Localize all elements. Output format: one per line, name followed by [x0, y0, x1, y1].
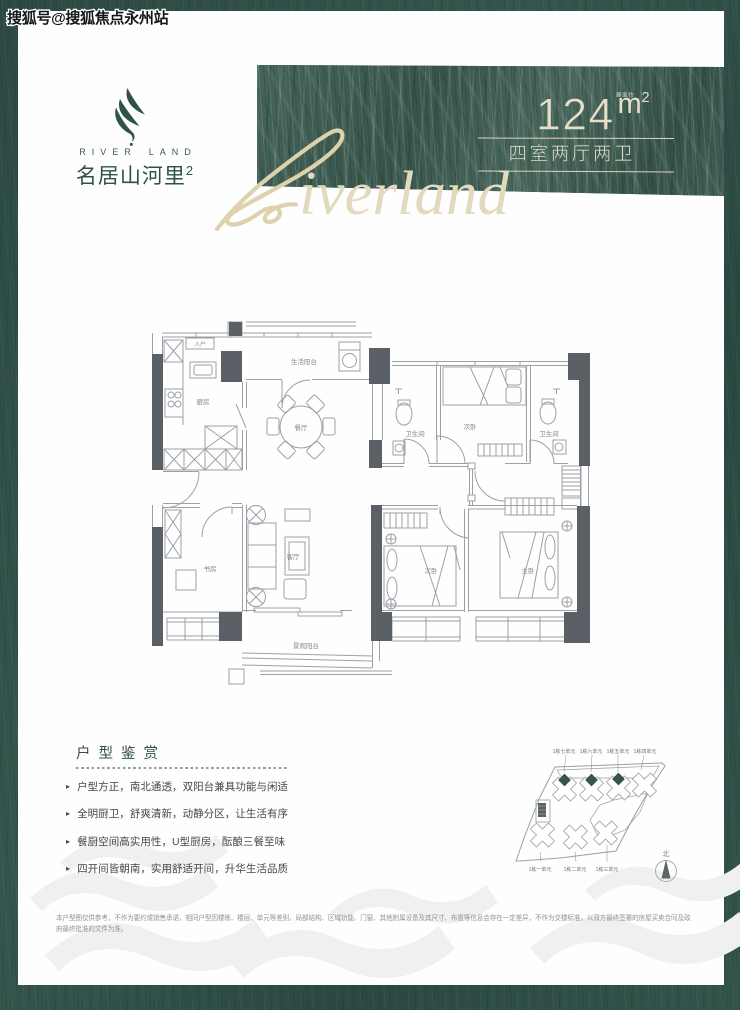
svg-text:124: 124 — [536, 91, 615, 140]
svg-text:餐厅: 餐厅 — [295, 423, 309, 432]
svg-text:次卧: 次卧 — [464, 422, 478, 431]
svg-text:书房: 书房 — [204, 564, 217, 573]
svg-text:主卧: 主卧 — [522, 566, 536, 575]
svg-text:客厅: 客厅 — [287, 552, 301, 561]
svg-text:入户: 入户 — [194, 340, 205, 348]
svg-text:景观阳台: 景观阳台 — [293, 641, 319, 650]
svg-text:厨房: 厨房 — [197, 397, 210, 406]
svg-text:生活阳台: 生活阳台 — [291, 357, 317, 366]
svg-text:建面约: 建面约 — [616, 91, 635, 99]
svg-text:2: 2 — [642, 90, 650, 106]
svg-text:卫生间: 卫生间 — [405, 429, 425, 438]
svg-text:次卧: 次卧 — [425, 566, 439, 575]
svg-text:卫生间: 卫生间 — [539, 429, 559, 438]
svg-text:四室两厅两卫: 四室两厅两卫 — [509, 143, 636, 164]
